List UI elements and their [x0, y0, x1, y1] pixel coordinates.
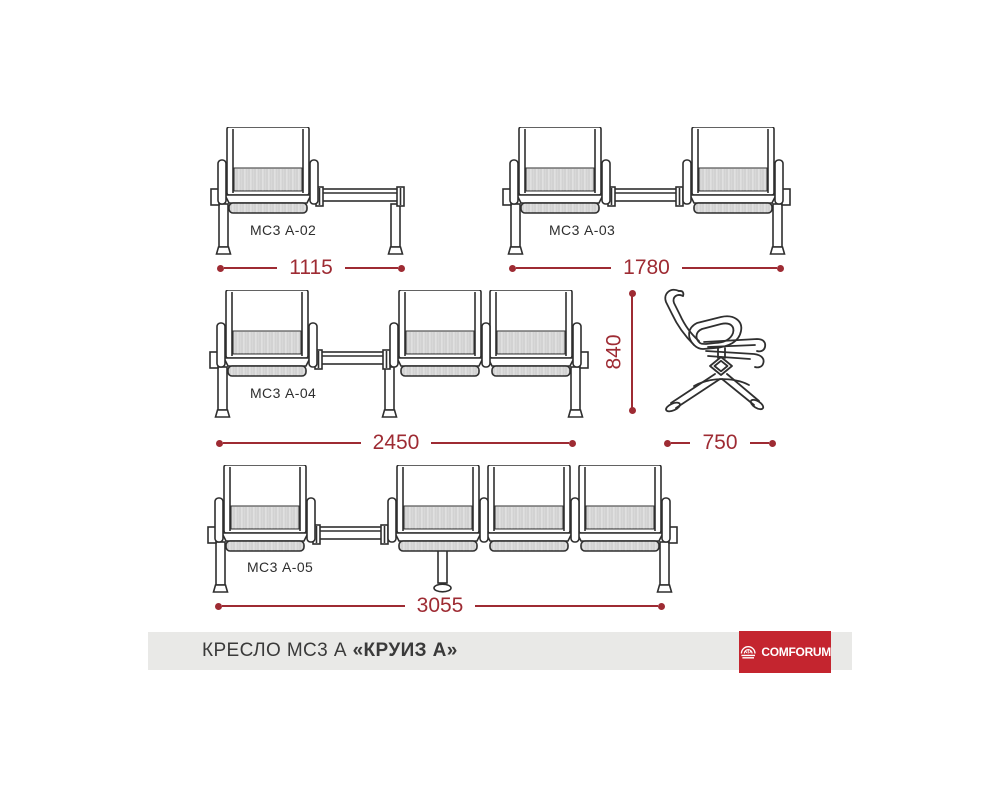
config-label-mc3-a05: МС3 А-05 — [247, 559, 313, 575]
dimension-value: 1115 — [277, 257, 345, 278]
config-label-mc3-a02: МС3 А-02 — [250, 222, 316, 238]
dim-line — [475, 605, 658, 607]
dim-endpoint-dot — [777, 265, 784, 272]
product-title-prefix: КРЕСЛО МС3 А — [202, 640, 353, 661]
dimension-depth-750: 750 — [664, 431, 776, 455]
comforum-logo: COMFORUM — [739, 631, 831, 673]
dim-line — [516, 267, 611, 269]
arch-logo-icon — [739, 644, 757, 661]
dim-line — [223, 442, 361, 444]
dim-line — [682, 267, 777, 269]
dimension-value: 3055 — [405, 595, 476, 616]
dim-endpoint-dot — [216, 440, 223, 447]
bench-diagram-mc3-a05 — [207, 465, 678, 599]
dimension-width-mc3-a03: 1780 — [509, 256, 784, 280]
chair-side-view-diagram — [658, 285, 780, 422]
dimension-value: 750 — [690, 432, 749, 453]
brand-name: COMFORUM — [761, 645, 831, 659]
dimension-width-mc3-a02: 1115 — [217, 256, 405, 280]
dim-endpoint-dot — [398, 265, 405, 272]
dim-endpoint-dot — [629, 407, 636, 414]
product-dimension-diagram: МС3 А-02 МС3 А-03 МС3 А-04 МС3 А-05 1115… — [0, 0, 1000, 800]
dim-line — [345, 267, 398, 269]
dimension-width-mc3-a04: 2450 — [216, 431, 576, 455]
dim-endpoint-dot — [509, 265, 516, 272]
dim-endpoint-dot — [215, 603, 222, 610]
dimension-height-840: 840 — [600, 290, 644, 414]
dimension-value: 1780 — [611, 257, 682, 278]
bench-diagram-mc3-a02 — [210, 127, 411, 261]
dim-endpoint-dot — [569, 440, 576, 447]
dim-line — [671, 442, 690, 444]
product-title: КРЕСЛО МС3 А «КРУИЗ А» — [202, 640, 458, 662]
product-title-name: «КРУИЗ А» — [353, 640, 458, 661]
dim-endpoint-dot — [629, 290, 636, 297]
dim-endpoint-dot — [658, 603, 665, 610]
dim-line — [431, 442, 569, 444]
bench-diagram-mc3-a03 — [502, 127, 791, 261]
dimension-value: 2450 — [361, 432, 432, 453]
bench-diagram-mc3-a04 — [209, 290, 589, 424]
dimension-width-mc3-a05: 3055 — [215, 594, 665, 618]
dim-endpoint-dot — [217, 265, 224, 272]
config-label-mc3-a04: МС3 А-04 — [250, 385, 316, 401]
dim-line — [224, 267, 277, 269]
dim-line — [631, 294, 633, 410]
dim-endpoint-dot — [664, 440, 671, 447]
dim-line — [222, 605, 405, 607]
dim-line — [750, 442, 769, 444]
config-label-mc3-a03: МС3 А-03 — [549, 222, 615, 238]
dim-endpoint-dot — [769, 440, 776, 447]
dimension-value: 840 — [604, 334, 625, 369]
